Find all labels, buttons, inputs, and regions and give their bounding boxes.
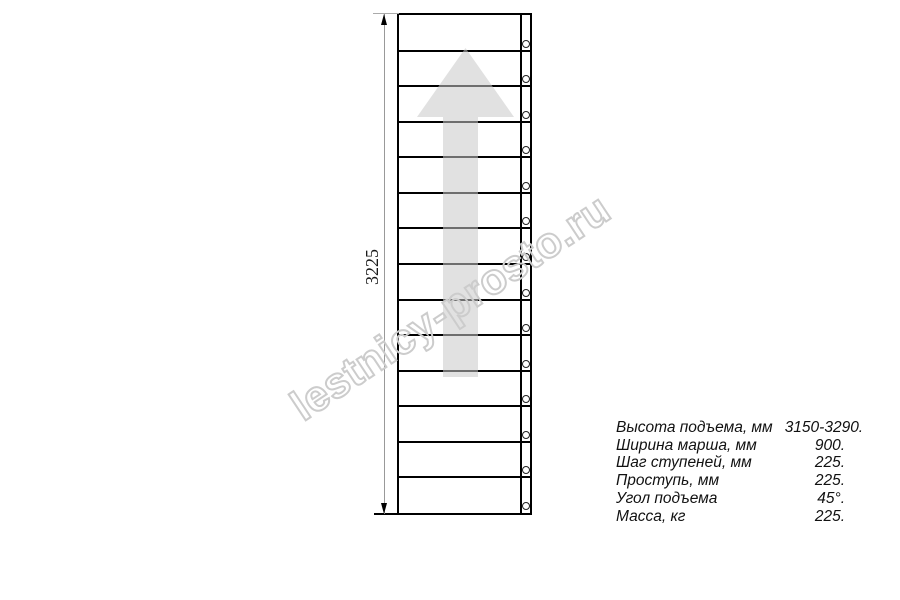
spec-row: Высота подъема, мм3150-3290. xyxy=(616,419,845,437)
bolt-circle-icon xyxy=(522,217,530,225)
spec-value: 225. xyxy=(815,472,845,490)
spec-value: 3150-3290. xyxy=(785,419,863,437)
spec-value: 45°. xyxy=(817,490,845,508)
bolt-circle-icon xyxy=(522,466,530,474)
specifications-table: Высота подъема, мм3150-3290.Ширина марша… xyxy=(616,419,845,525)
spec-row: Угол подъема45°. xyxy=(616,490,845,508)
step-line xyxy=(399,476,530,478)
spec-row: Ширина марша, мм900. xyxy=(616,437,845,455)
spec-row: Шаг ступеней, мм225. xyxy=(616,454,845,472)
spec-value: 225. xyxy=(815,454,845,472)
step-line xyxy=(399,405,530,407)
bolt-circle-icon xyxy=(522,182,530,190)
bolt-circle-icon xyxy=(522,40,530,48)
spec-row: Масса, кг225. xyxy=(616,508,845,526)
bolt-circle-icon xyxy=(522,289,530,297)
bolt-circle-icon xyxy=(522,431,530,439)
bolt-circle-icon xyxy=(522,395,530,403)
spec-label: Высота подъема, мм xyxy=(616,419,773,437)
spec-row: Проступь, мм225. xyxy=(616,472,845,490)
bolt-circle-icon xyxy=(522,111,530,119)
dimension-line xyxy=(384,14,385,514)
spec-label: Шаг ступеней, мм xyxy=(616,454,752,472)
bolt-circle-icon xyxy=(522,360,530,368)
drawing-canvas: 3225 lestnicy-prosto.ru Высота подъема, … xyxy=(0,0,900,600)
dimension-value-label: 3225 xyxy=(362,246,382,288)
spec-label: Ширина марша, мм xyxy=(616,437,757,455)
dimension-arrowhead-down-icon xyxy=(381,503,387,514)
spec-label: Масса, кг xyxy=(616,508,685,526)
bolt-circle-icon xyxy=(522,75,530,83)
step-line xyxy=(399,441,530,443)
bolt-circle-icon xyxy=(522,146,530,154)
spec-value: 900. xyxy=(815,437,845,455)
spec-label: Угол подъема xyxy=(616,490,717,508)
bolt-circle-icon xyxy=(522,253,530,261)
bolt-circle-icon xyxy=(522,324,530,332)
spec-label: Проступь, мм xyxy=(616,472,719,490)
bolt-circle-icon xyxy=(522,502,530,510)
dimension-arrowhead-up-icon xyxy=(381,14,387,25)
spec-value: 225. xyxy=(815,508,845,526)
